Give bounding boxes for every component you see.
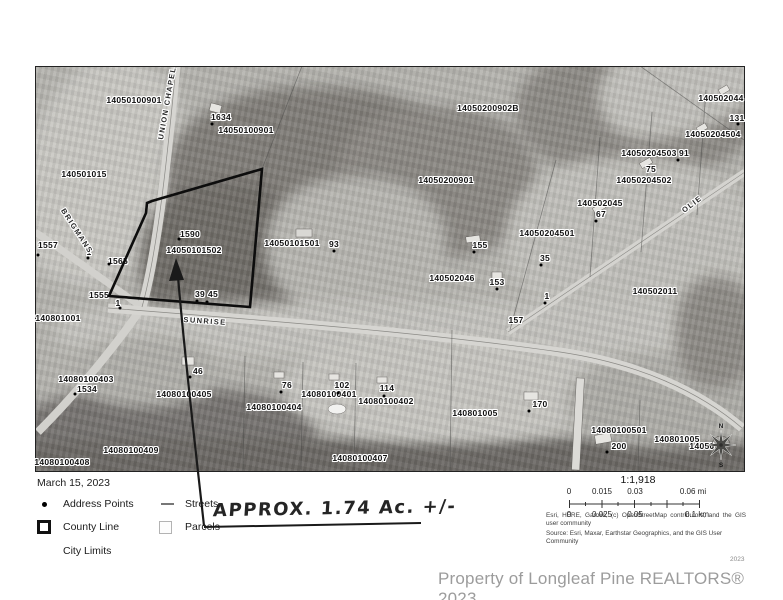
scale-mi-0: 0 [567, 487, 571, 496]
map-legend: March 15, 2023 Address Points Streets Co… [37, 477, 257, 557]
legend-label-streets: Streets [185, 498, 257, 510]
street-line-icon [161, 503, 174, 505]
aerial-noise [36, 67, 744, 471]
legend-label-city-limits: City Limits [63, 545, 159, 557]
page: 1405010090116341405010090114050101514050… [0, 0, 783, 600]
legend-label-county-line: County Line [63, 521, 159, 533]
map-date: March 15, 2023 [37, 477, 257, 489]
attribution-source: Source: Esri, Maxar, Earthstar Geographi… [546, 530, 746, 547]
parcel-icon [159, 521, 172, 534]
scale-mi-2: 0.03 [627, 487, 643, 496]
legend-label-parcels: Parcels [185, 521, 257, 533]
legend-label-address-points: Address Points [63, 498, 159, 510]
city-limits-icon [37, 544, 50, 557]
scale-mi-1: 0.015 [592, 487, 612, 496]
county-line-icon [37, 520, 51, 534]
map-attribution: Esri, HERE, Garmin, (c) OpenStreetMap co… [546, 512, 746, 546]
scale-mi-3: 0.06 mi [680, 487, 706, 496]
address-point-icon [42, 502, 47, 507]
small-year: 2023 [730, 556, 744, 563]
scale-bar-ticks [569, 498, 709, 510]
copyright-text: Property of Longleaf Pine REALTORS® 2023 [438, 569, 783, 600]
scale-ratio: 1:1,918 [620, 474, 655, 486]
attribution-line: Esri, HERE, Garmin, (c) OpenStreetMap co… [546, 512, 746, 529]
aerial-map [35, 66, 745, 472]
